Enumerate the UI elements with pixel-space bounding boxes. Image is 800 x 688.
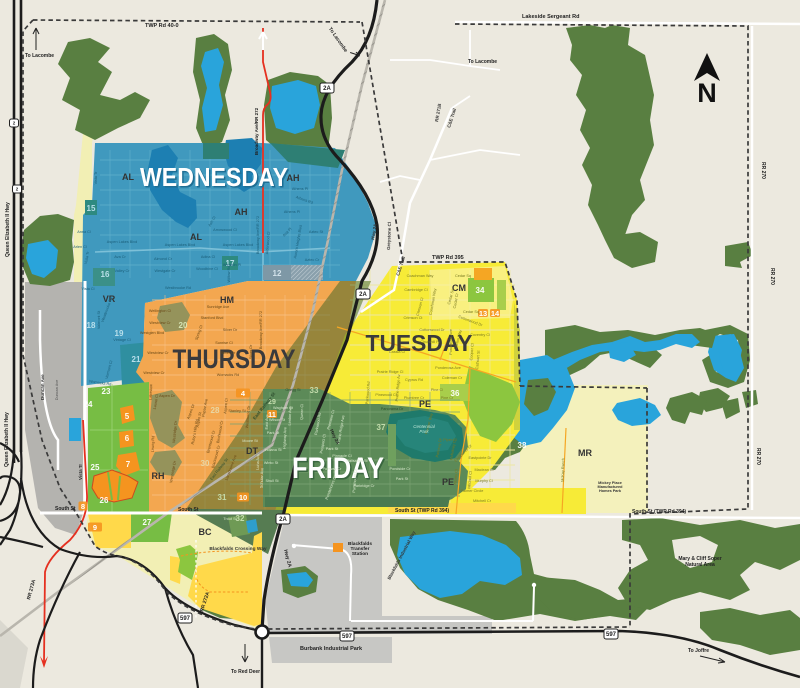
svg-text:Westbrooke Rd: Westbrooke Rd xyxy=(165,286,191,290)
svg-text:33: 33 xyxy=(310,386,319,395)
svg-text:Cedar Sq: Cedar Sq xyxy=(463,310,479,314)
svg-text:Queen Elizabeth II Hwy: Queen Elizabeth II Hwy xyxy=(5,202,11,257)
svg-text:Crimson Ct: Crimson Ct xyxy=(404,316,424,320)
svg-text:5: 5 xyxy=(125,412,130,421)
svg-text:2A: 2A xyxy=(279,517,287,523)
svg-text:Indiana St: Indiana St xyxy=(264,448,282,452)
svg-text:24: 24 xyxy=(84,400,93,409)
svg-text:THURSDAY: THURSDAY xyxy=(173,344,296,374)
svg-text:6: 6 xyxy=(125,434,130,443)
svg-text:Silver Dr: Silver Dr xyxy=(221,351,236,355)
svg-text:Stanley St: Stanley St xyxy=(228,409,246,413)
svg-text:Pine Cr: Pine Cr xyxy=(441,396,454,400)
svg-text:Vista Cl: Vista Cl xyxy=(81,287,94,291)
svg-text:23: 23 xyxy=(102,387,111,396)
svg-text:Coachman Way: Coachman Way xyxy=(407,274,434,278)
svg-text:31: 31 xyxy=(218,493,227,502)
svg-text:Natural Area: Natural Area xyxy=(685,562,715,568)
svg-text:26: 26 xyxy=(100,496,109,505)
svg-text:Vintage Cl: Vintage Cl xyxy=(113,338,131,342)
svg-text:Woodbine Cl: Woodbine Cl xyxy=(196,267,218,271)
svg-text:Westview Cr: Westview Cr xyxy=(149,321,171,325)
svg-text:Womacks Rd: Womacks Rd xyxy=(217,373,240,377)
svg-text:Duncan Ave: Duncan Ave xyxy=(55,380,59,400)
svg-text:18: 18 xyxy=(87,321,96,330)
svg-text:To Lacombe: To Lacombe xyxy=(25,53,54,59)
svg-text:Palisades St: Palisades St xyxy=(346,459,368,463)
svg-text:Vista Tr: Vista Tr xyxy=(78,464,83,480)
svg-text:Pondside Cr: Pondside Cr xyxy=(390,467,412,471)
svg-text:Highway Ave: Highway Ave xyxy=(283,427,288,449)
svg-text:RH: RH xyxy=(152,471,165,481)
svg-text:Aspen Lakes Blvd: Aspen Lakes Blvd xyxy=(107,240,137,244)
svg-text:TWP Rd 40-0: TWP Rd 40-0 xyxy=(145,23,179,29)
svg-text:RR 270: RR 270 xyxy=(760,162,766,179)
svg-text:To Joffre: To Joffre xyxy=(688,648,709,654)
svg-text:Arlen Cl: Arlen Cl xyxy=(73,245,87,249)
svg-text:Lenton Ave: Lenton Ave xyxy=(288,406,293,425)
svg-text:Cyprus Rd: Cyprus Rd xyxy=(405,378,423,382)
svg-text:AL: AL xyxy=(190,232,202,242)
svg-text:Coleman Cr: Coleman Cr xyxy=(442,376,463,380)
svg-text:South St (TWP Rd 394): South St (TWP Rd 394) xyxy=(632,509,686,515)
svg-text:Anna Cl: Anna Cl xyxy=(77,230,91,234)
svg-text:25: 25 xyxy=(91,463,100,472)
svg-text:Broadway Ave/RR 272: Broadway Ave/RR 272 xyxy=(259,311,263,349)
svg-text:To Red Deer: To Red Deer xyxy=(231,669,260,675)
svg-text:AH: AH xyxy=(287,173,300,183)
svg-text:Cambridge Cl: Cambridge Cl xyxy=(404,288,427,292)
svg-text:Luna Ave: Luna Ave xyxy=(256,454,261,470)
svg-text:Prairie Ridge Cl: Prairie Ridge Cl xyxy=(377,370,404,374)
svg-text:Moore St: Moore St xyxy=(242,439,258,443)
svg-text:Churchill Pl: Churchill Pl xyxy=(420,340,439,344)
svg-text:Queen Elizabeth II Hwy: Queen Elizabeth II Hwy xyxy=(4,412,10,467)
svg-text:Stanford Blvd: Stanford Blvd xyxy=(201,316,224,320)
svg-text:9: 9 xyxy=(93,523,97,532)
svg-text:13: 13 xyxy=(479,309,487,318)
svg-text:597: 597 xyxy=(606,632,617,638)
svg-text:Ponderosa Ave: Ponderosa Ave xyxy=(435,366,461,370)
svg-text:Greystone Cl: Greystone Cl xyxy=(386,222,392,250)
svg-text:Winto St: Winto St xyxy=(264,461,279,465)
svg-text:Parkridge Cr: Parkridge Cr xyxy=(353,484,375,488)
svg-text:Aztec Cr: Aztec Cr xyxy=(305,258,320,262)
svg-text:Cottonwood Dr: Cottonwood Dr xyxy=(419,328,445,332)
svg-text:16: 16 xyxy=(101,270,110,279)
svg-text:Blackfalds Crossing Way: Blackfalds Crossing Way xyxy=(209,546,266,552)
svg-text:Palmer Circle: Palmer Circle xyxy=(461,489,484,493)
svg-text:2A: 2A xyxy=(323,86,331,92)
svg-text:Sunridge Ave: Sunridge Ave xyxy=(207,305,230,309)
svg-text:20: 20 xyxy=(179,321,188,330)
svg-text:Silver Dr: Silver Dr xyxy=(249,344,253,359)
svg-text:South St: South St xyxy=(55,506,76,512)
svg-text:Park St: Park St xyxy=(396,477,409,481)
svg-text:Adina Cl: Adina Cl xyxy=(201,255,216,259)
svg-text:Cedar Sq: Cedar Sq xyxy=(455,274,471,278)
svg-text:MR: MR xyxy=(578,448,592,458)
svg-text:Pinnacle Cl: Pinnacle Cl xyxy=(332,454,351,458)
svg-text:AH: AH xyxy=(235,207,248,217)
svg-text:Park St: Park St xyxy=(267,431,280,435)
svg-text:Broadway Ave/RR 272: Broadway Ave/RR 272 xyxy=(256,216,260,254)
svg-text:Duncan Ave: Duncan Ave xyxy=(40,374,45,400)
svg-text:21: 21 xyxy=(132,355,141,364)
svg-text:Queen Cl: Queen Cl xyxy=(300,404,305,420)
svg-text:Athens Pl: Athens Pl xyxy=(284,210,300,214)
svg-text:Cassia Cl: Cassia Cl xyxy=(389,350,405,354)
svg-text:Athens Pl: Athens Pl xyxy=(292,187,308,191)
svg-text:East Ave: East Ave xyxy=(265,414,270,429)
svg-text:38: 38 xyxy=(518,441,527,450)
svg-text:McKay Ranch: McKay Ranch xyxy=(561,458,566,482)
svg-text:Silver Dr: Silver Dr xyxy=(223,328,238,332)
svg-text:Wilson St: Wilson St xyxy=(269,418,286,422)
svg-text:Gregg St: Gregg St xyxy=(285,388,301,392)
svg-text:Aztec St: Aztec St xyxy=(309,230,324,234)
svg-text:Station: Station xyxy=(352,551,368,557)
svg-text:12: 12 xyxy=(273,269,282,278)
svg-text:Mitchell Cr: Mitchell Cr xyxy=(473,499,492,503)
svg-text:14: 14 xyxy=(491,309,500,318)
svg-text:Valmont St: Valmont St xyxy=(97,310,101,329)
svg-text:Willow Rd: Willow Rd xyxy=(227,266,231,283)
svg-text:Park St: Park St xyxy=(326,447,339,451)
svg-text:N: N xyxy=(697,78,717,108)
svg-text:597: 597 xyxy=(342,634,353,640)
svg-text:TWP Rd 395: TWP Rd 395 xyxy=(432,255,464,261)
svg-text:10: 10 xyxy=(239,493,247,502)
svg-text:Shull St: Shull St xyxy=(265,479,279,483)
svg-text:Park: Park xyxy=(419,429,429,434)
svg-text:30: 30 xyxy=(201,459,210,468)
svg-text:Burbank Industrial Park: Burbank Industrial Park xyxy=(300,646,363,652)
svg-text:Schular Ave: Schular Ave xyxy=(260,468,265,488)
svg-text:Panorama Dr: Panorama Dr xyxy=(381,407,404,411)
svg-text:Homes Park: Homes Park xyxy=(599,489,622,493)
svg-text:8: 8 xyxy=(81,502,85,511)
svg-text:RR 270: RR 270 xyxy=(755,448,761,465)
svg-text:Portway Cr: Portway Cr xyxy=(323,467,343,471)
svg-text:Westglen Blvd: Westglen Blvd xyxy=(140,331,164,335)
svg-text:37: 37 xyxy=(377,423,386,432)
svg-text:Aspen Dr: Aspen Dr xyxy=(159,394,176,398)
svg-text:Pinewood Cl: Pinewood Cl xyxy=(375,393,396,397)
svg-text:Lakeview: Lakeview xyxy=(149,384,154,400)
svg-text:Westview Cr: Westview Cr xyxy=(147,351,169,355)
svg-text:Aspen Lakes Blvd: Aspen Lakes Blvd xyxy=(165,243,195,247)
svg-text:2A: 2A xyxy=(359,292,367,298)
svg-text:34: 34 xyxy=(476,286,485,295)
svg-text:Almond Cr: Almond Cr xyxy=(154,257,173,261)
svg-text:597: 597 xyxy=(180,616,191,622)
svg-text:Trout St: Trout St xyxy=(223,517,237,521)
svg-text:Pine Cl: Pine Cl xyxy=(431,388,443,392)
svg-text:Ava Cr: Ava Cr xyxy=(114,255,126,259)
svg-text:South St (TWP Rd 394): South St (TWP Rd 394) xyxy=(395,508,449,514)
svg-text:28: 28 xyxy=(211,406,220,415)
svg-text:Murphy Cl: Murphy Cl xyxy=(475,479,492,483)
svg-text:Wellington Cl: Wellington Cl xyxy=(149,309,171,313)
svg-text:Aspen Lakes Blvd: Aspen Lakes Blvd xyxy=(223,243,253,247)
svg-text:To Lacombe: To Lacombe xyxy=(468,59,497,65)
svg-text:HM: HM xyxy=(220,295,234,305)
svg-text:27: 27 xyxy=(143,518,152,527)
svg-text:32: 32 xyxy=(236,514,245,523)
svg-text:Westgate Cr: Westgate Cr xyxy=(154,269,176,273)
svg-text:BC: BC xyxy=(199,527,212,537)
svg-text:Sunrise Cl: Sunrise Cl xyxy=(215,341,233,345)
svg-text:15: 15 xyxy=(87,204,96,213)
svg-text:Lakeside Sergeant Rd: Lakeside Sergeant Rd xyxy=(522,14,579,20)
svg-text:Broadway Ave/RR 272: Broadway Ave/RR 272 xyxy=(254,107,259,155)
svg-text:South St: South St xyxy=(178,507,199,513)
svg-text:Vista Tr: Vista Tr xyxy=(94,171,98,185)
svg-text:Coventry Cl: Coventry Cl xyxy=(470,333,490,337)
svg-text:Valley Cr: Valley Cr xyxy=(114,269,130,273)
svg-text:Leung Rd: Leung Rd xyxy=(151,436,156,453)
svg-text:Arrowwood Cl: Arrowwood Cl xyxy=(213,228,237,232)
svg-text:Eastpointe Dr: Eastpointe Dr xyxy=(468,456,492,460)
svg-text:RR 270: RR 270 xyxy=(769,268,775,285)
svg-text:PE: PE xyxy=(419,399,431,409)
svg-text:Winston Pl: Winston Pl xyxy=(223,263,241,267)
svg-text:PE: PE xyxy=(442,477,454,487)
svg-text:Maclean Cl: Maclean Cl xyxy=(475,468,494,472)
svg-text:7: 7 xyxy=(126,460,131,469)
svg-text:Ponderosa Ave: Ponderosa Ave xyxy=(449,329,453,355)
svg-text:WEDNESDAY: WEDNESDAY xyxy=(140,162,288,192)
svg-text:19: 19 xyxy=(115,329,124,338)
svg-text:Plumtree Cr: Plumtree Cr xyxy=(404,396,425,400)
svg-text:AL: AL xyxy=(122,172,134,182)
svg-text:Westview Cr: Westview Cr xyxy=(143,371,165,375)
